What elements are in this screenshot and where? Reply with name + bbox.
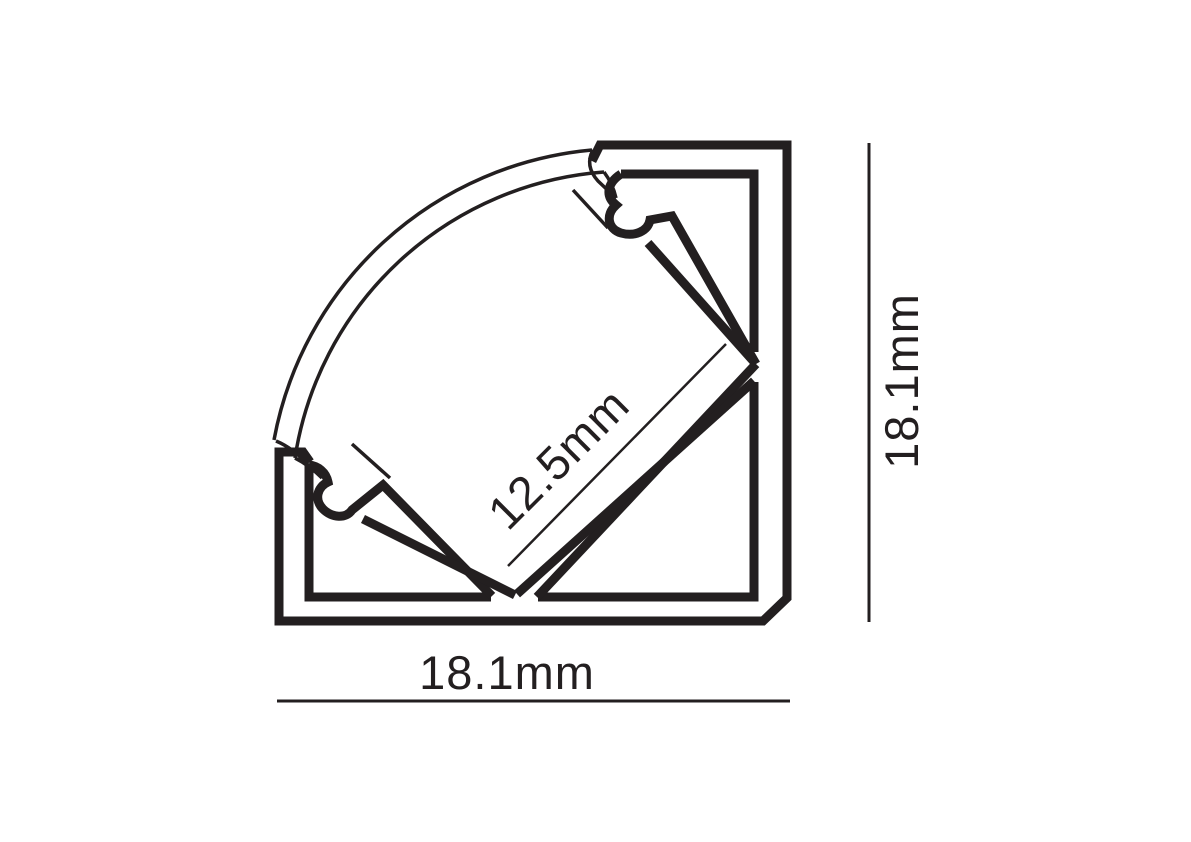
height-dimension-label: 18.1mm: [875, 293, 928, 469]
left-groove-and-lower-channel-wall: [309, 465, 492, 596]
cover-top-tongue-tip-line: [573, 190, 608, 228]
body-inner-wall-bottom-left: [309, 465, 491, 597]
cover-outer-arc: [274, 150, 592, 440]
width-dimension-label: 18.1mm: [419, 646, 595, 699]
cover-left-tongue-tip-line: [352, 444, 390, 478]
cover-inner-arc: [295, 172, 604, 458]
lower-channel-wall-inner-line: [363, 519, 515, 595]
technical-drawing-page: 12.5mm 18.1mm 18.1mm: [0, 0, 1191, 842]
profile-cross-section-diagram: 12.5mm 18.1mm 18.1mm: [0, 0, 1191, 842]
body-outer-outline: [279, 145, 787, 621]
